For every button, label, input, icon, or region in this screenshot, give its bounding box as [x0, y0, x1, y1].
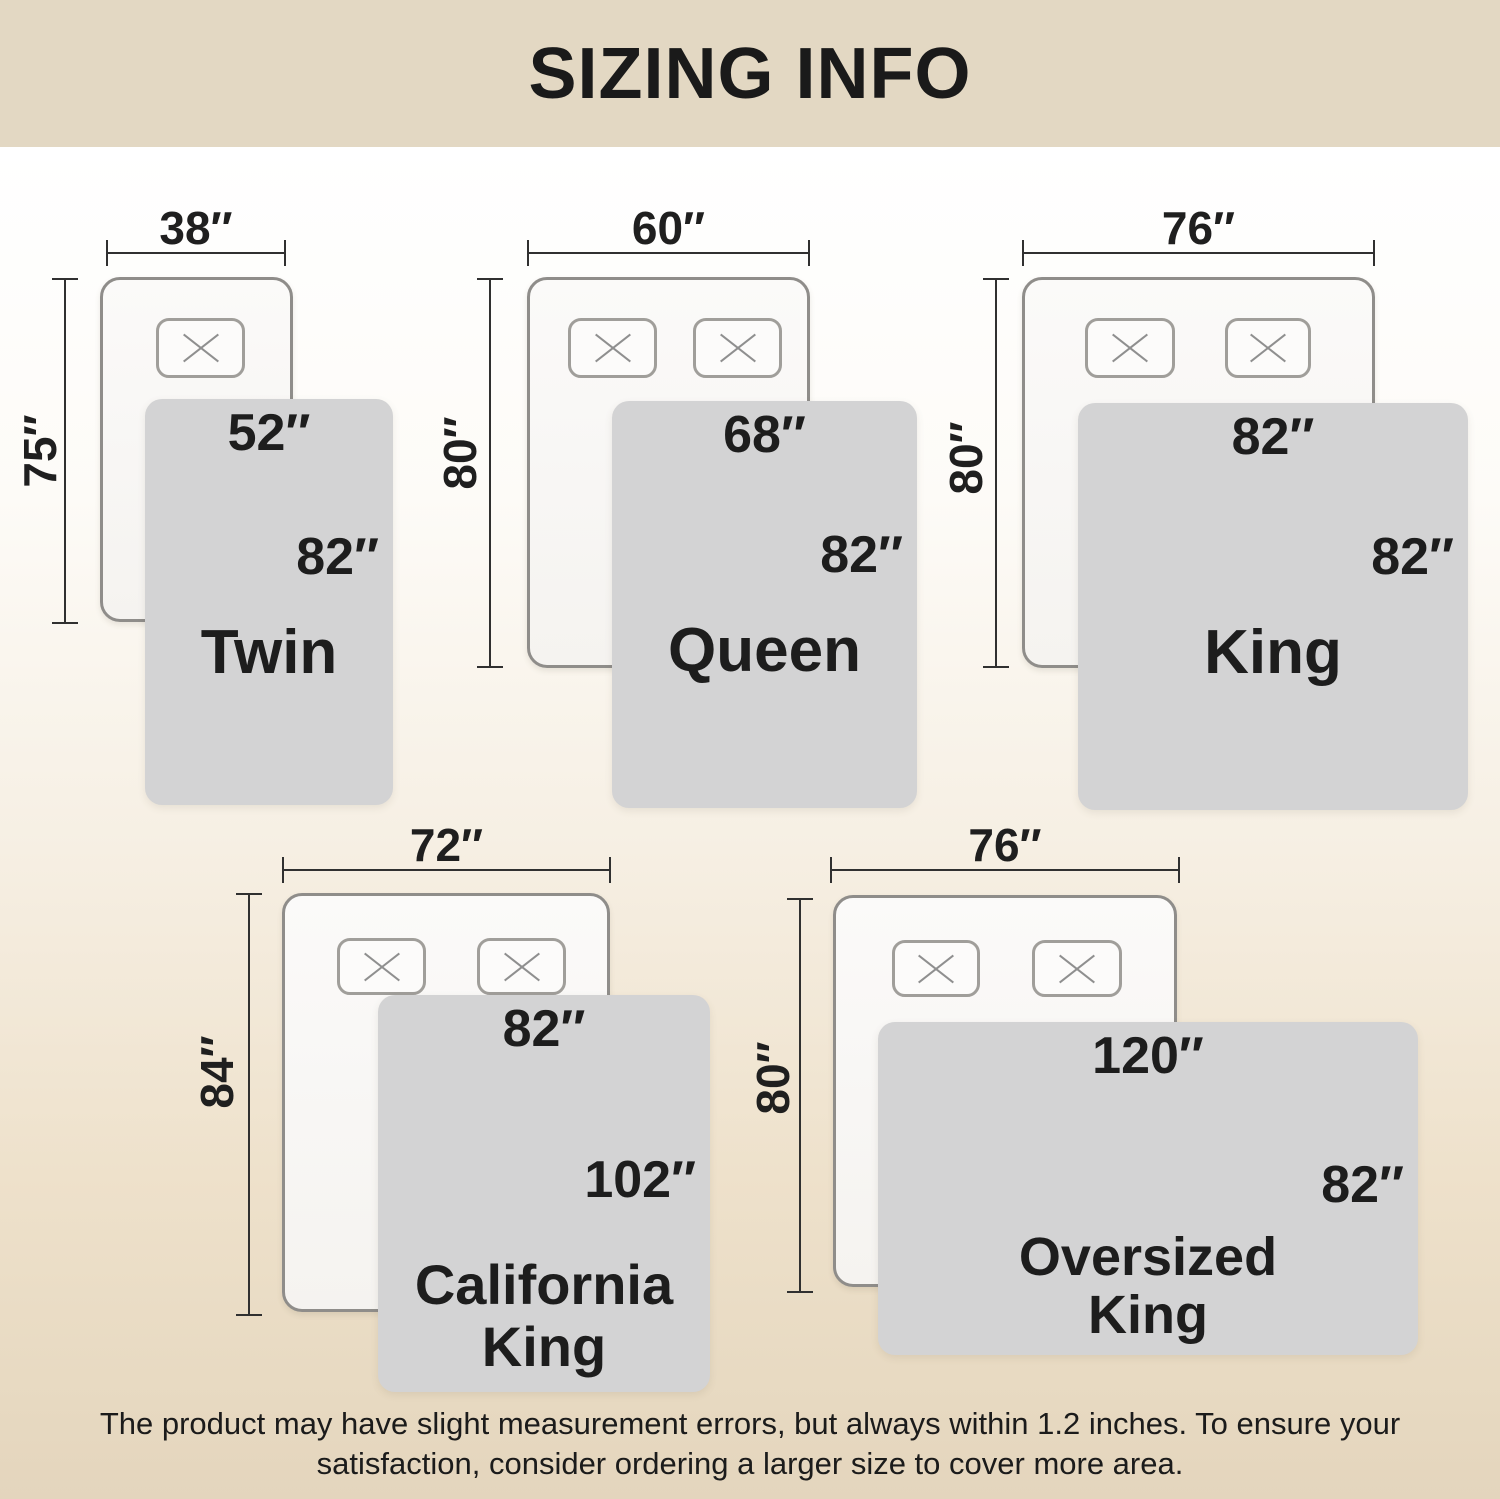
bed-width-dimension-line	[282, 869, 611, 871]
disclaimer: The product may have slight measurement …	[0, 1404, 1500, 1484]
blanket-width-label: 82″	[378, 1003, 710, 1055]
blanket-height-label: 82″	[296, 531, 379, 583]
size-name-label: Oversized King	[878, 1228, 1418, 1344]
disclaimer-line2: satisfaction, consider ordering a larger…	[0, 1444, 1500, 1484]
sizing-infographic: SIZING INFO 38″ 75″ 52″ 82″ Twin 60″ 80″	[0, 0, 1500, 1499]
blanket-oversized-king: 120″ 82″ Oversized King	[878, 1022, 1418, 1355]
bed-width-dimension-line	[830, 869, 1180, 871]
pillow	[156, 318, 245, 378]
blanket-twin: 52″ 82″ Twin	[145, 399, 393, 805]
bed-height-dimension-line	[799, 898, 801, 1293]
bed-width-label: 72″	[282, 822, 611, 868]
bed-width-dimension-line	[527, 252, 810, 254]
bed-width-dimension-line	[1022, 252, 1375, 254]
size-name-line2: King	[878, 1286, 1418, 1344]
bed-height-label: 80″	[941, 410, 991, 506]
bed-height-dimension-line	[995, 278, 997, 668]
blanket-height-label: 82″	[1321, 1159, 1404, 1211]
bed-width-label: 60″	[527, 205, 810, 251]
blanket-height-label: 82″	[820, 529, 903, 581]
pillow	[693, 318, 782, 378]
disclaimer-line1: The product may have slight measurement …	[0, 1404, 1500, 1444]
size-name-line1: Oversized	[878, 1228, 1418, 1286]
blanket-california-king: 82″ 102″ California King	[378, 995, 710, 1392]
blanket-queen: 68″ 82″ Queen	[612, 401, 917, 808]
size-name-label: Queen	[612, 620, 917, 682]
pillow	[568, 318, 657, 378]
size-name-label: California King	[378, 1254, 710, 1378]
bed-height-label: 75″	[15, 403, 65, 499]
blanket-height-label: 82″	[1371, 531, 1454, 583]
bed-width-label: 76″	[1022, 205, 1375, 251]
size-name-label: King	[1078, 622, 1468, 684]
pillow	[1085, 318, 1175, 378]
bed-height-label: 80″	[435, 405, 485, 501]
page-title: SIZING INFO	[529, 33, 972, 115]
header-band: SIZING INFO	[0, 0, 1500, 147]
blanket-width-label: 68″	[612, 409, 917, 461]
bed-width-dimension-line	[106, 252, 286, 254]
bed-height-label: 84″	[192, 1024, 242, 1120]
bed-height-label: 80″	[748, 1030, 798, 1126]
pillow	[337, 938, 426, 995]
blanket-king: 82″ 82″ King	[1078, 403, 1468, 810]
blanket-height-label: 102″	[584, 1154, 696, 1206]
size-name-line1: California	[378, 1254, 710, 1316]
bed-height-dimension-line	[248, 893, 250, 1316]
pillow	[1225, 318, 1311, 378]
bed-height-dimension-line	[489, 278, 491, 668]
bed-width-label: 38″	[106, 205, 286, 251]
size-name-line2: King	[378, 1316, 710, 1378]
blanket-width-label: 52″	[145, 407, 393, 459]
size-name-label: Twin	[145, 622, 393, 684]
bed-height-dimension-line	[64, 278, 66, 624]
pillow	[892, 940, 980, 997]
pillow	[477, 938, 566, 995]
bed-width-label: 76″	[830, 822, 1180, 868]
blanket-width-label: 82″	[1078, 411, 1468, 463]
pillow	[1032, 940, 1122, 997]
blanket-width-label: 120″	[878, 1030, 1418, 1082]
